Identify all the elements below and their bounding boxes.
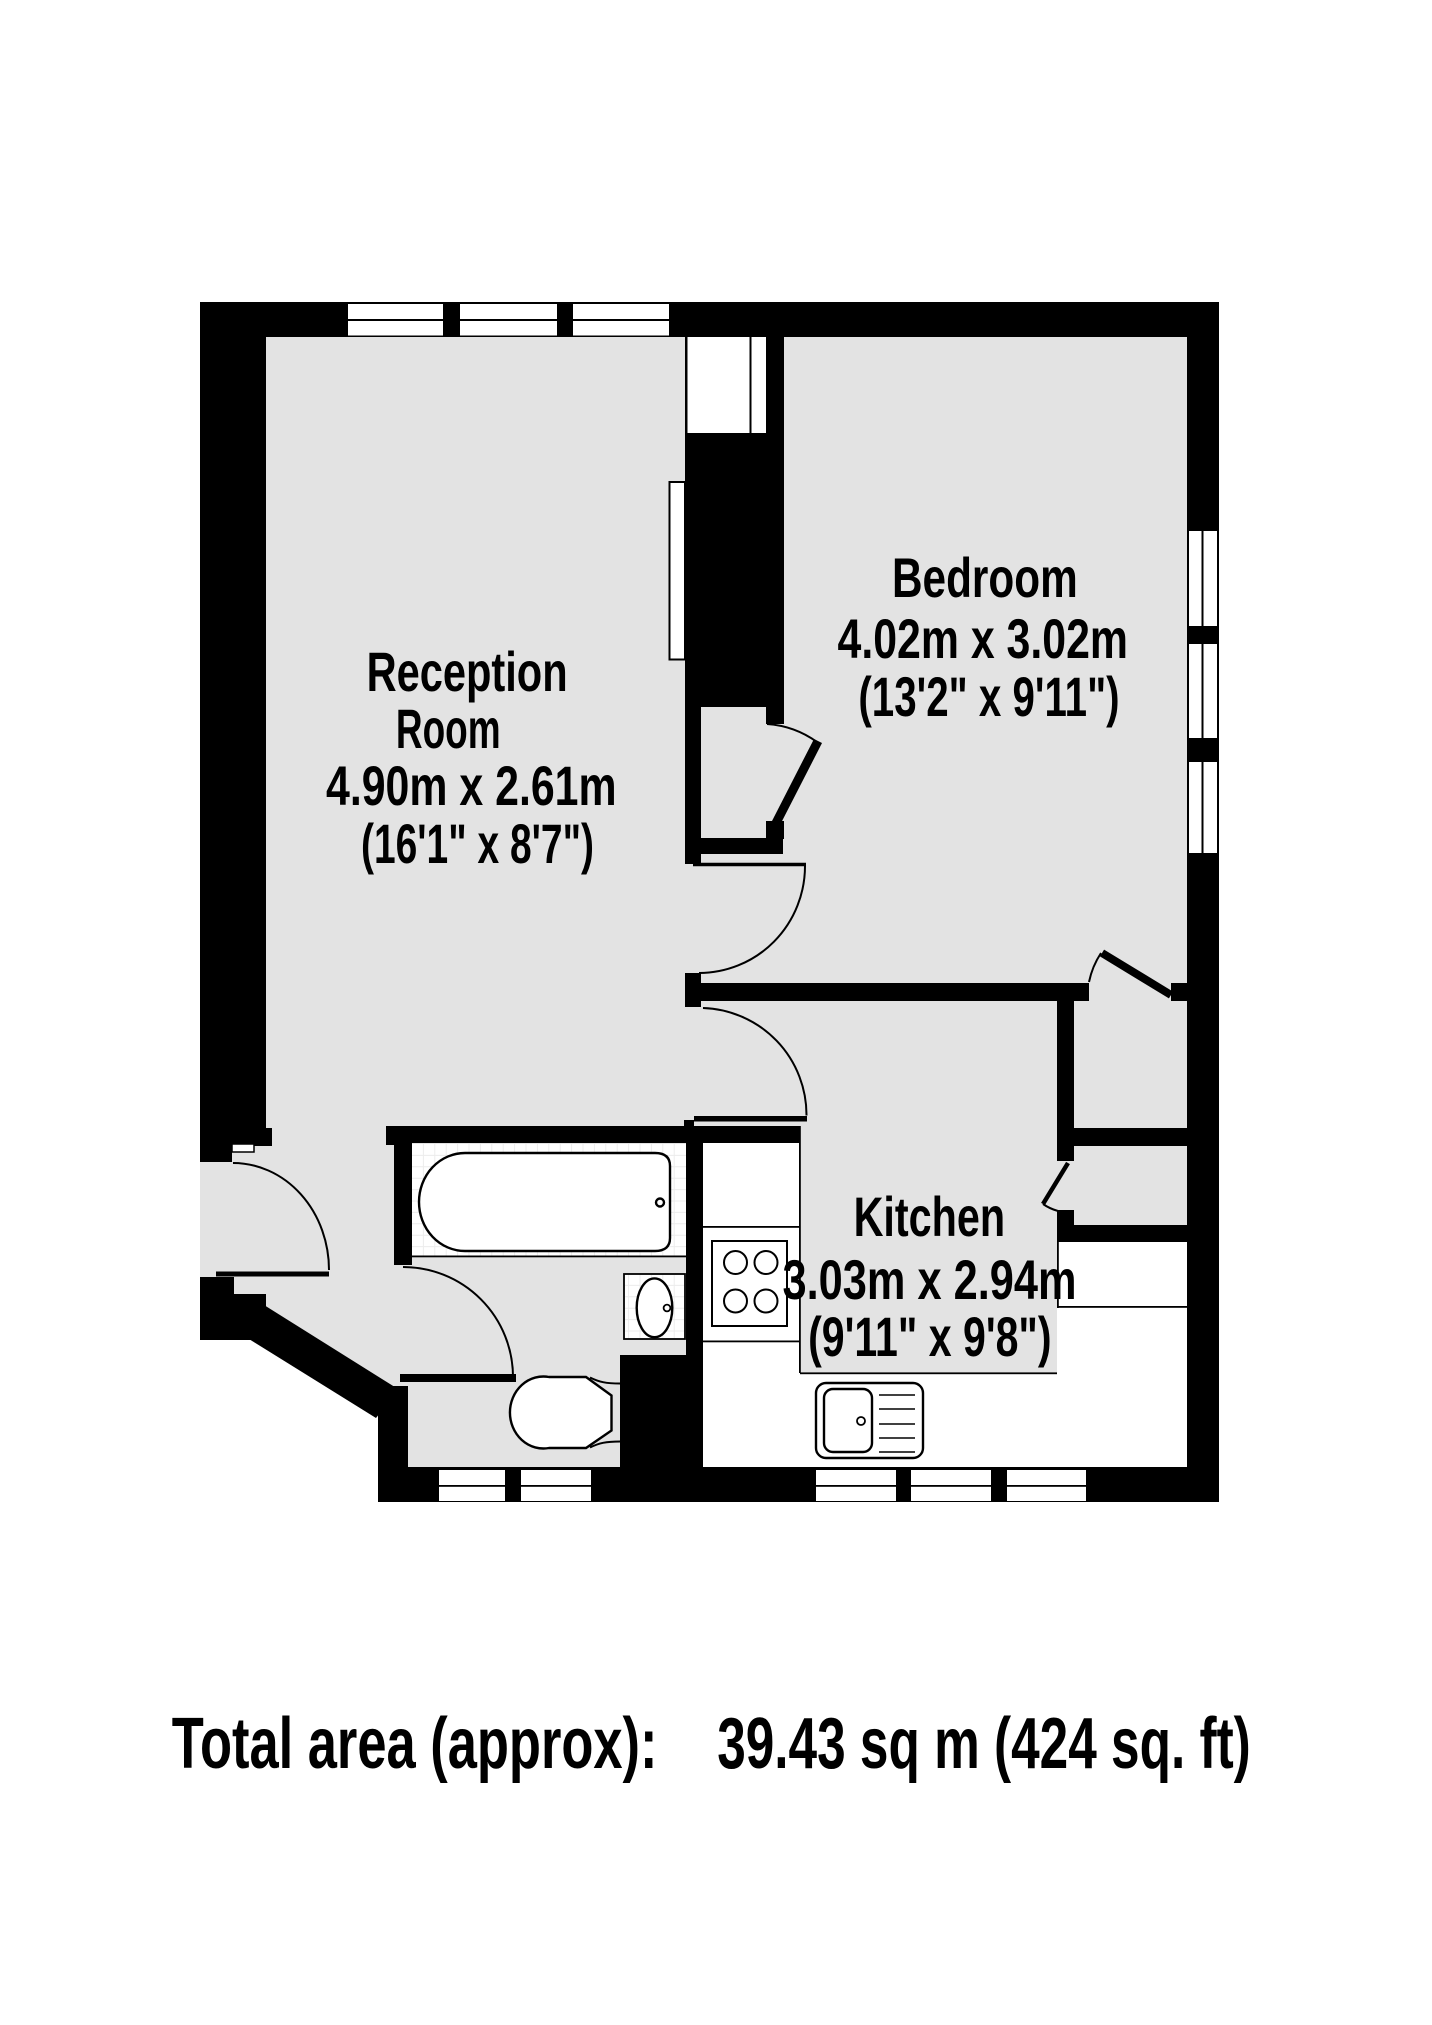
svg-text:Total area (approx):: Total area (approx): xyxy=(172,1704,658,1784)
svg-text:(16'1" x 8'7"): (16'1" x 8'7") xyxy=(361,812,594,875)
svg-text:3.03m x 2.94m: 3.03m x 2.94m xyxy=(783,1248,1077,1311)
svg-text:(9'11" x 9'8"): (9'11" x 9'8") xyxy=(808,1305,1052,1368)
svg-text:Bedroom: Bedroom xyxy=(892,546,1078,609)
svg-text:Reception: Reception xyxy=(367,640,568,703)
svg-text:(13'2" x 9'11"): (13'2" x 9'11") xyxy=(858,665,1119,728)
svg-text:4.02m x 3.02m: 4.02m x 3.02m xyxy=(838,607,1129,670)
svg-text:Room: Room xyxy=(396,697,501,760)
svg-text:Kitchen: Kitchen xyxy=(854,1185,1006,1248)
svg-text:4.90m x 2.61m: 4.90m x 2.61m xyxy=(326,754,617,817)
svg-text:39.43 sq m (424 sq. ft): 39.43 sq m (424 sq. ft) xyxy=(717,1704,1251,1784)
